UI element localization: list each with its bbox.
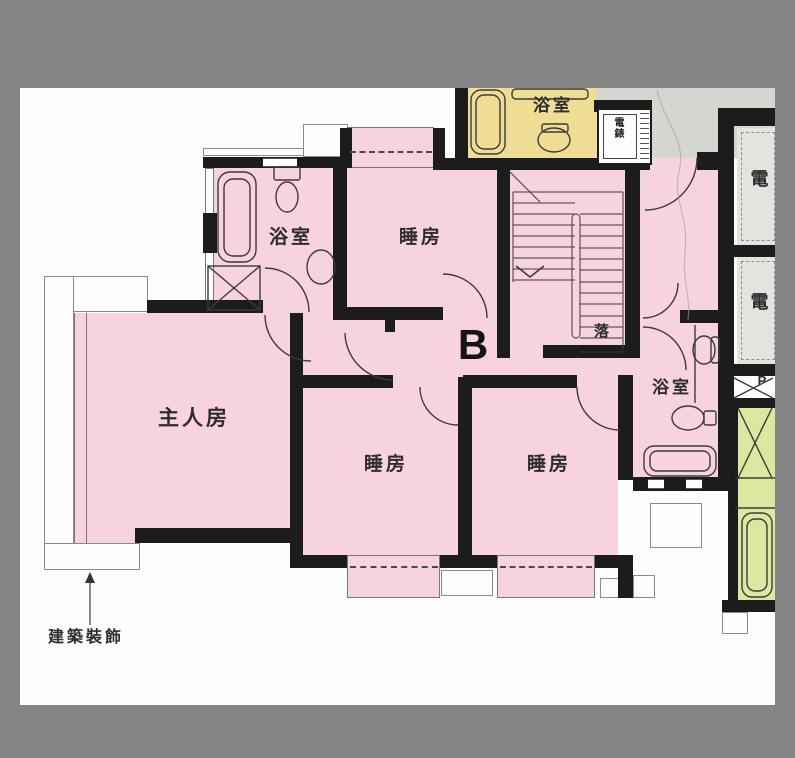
label-bedroom-right: 睡房 [518, 455, 580, 476]
wall [618, 375, 633, 480]
label-pipe-duct: P [752, 374, 772, 388]
wall [543, 345, 633, 358]
decoration-band-bottom [44, 543, 140, 570]
wall [618, 568, 633, 598]
window-in-wall [263, 158, 297, 167]
wall [385, 318, 395, 332]
window-in-wall [686, 479, 702, 489]
label-unit: B [450, 322, 496, 368]
bay-dashed-line [500, 566, 592, 568]
label-bedroom-left: 睡房 [355, 455, 417, 476]
wall [497, 158, 510, 358]
wall [595, 555, 633, 568]
decoration-arrow-head [85, 572, 95, 583]
label-meter-room-2: 電 [746, 293, 776, 313]
label-stair-down: 落 [589, 324, 617, 341]
wall [455, 88, 468, 158]
label-bathroom-top: 浴室 [260, 228, 322, 249]
bay-dashed-line [350, 566, 438, 568]
label-meter-room-1: 電 [746, 170, 776, 190]
meter-box-louvre [640, 113, 649, 160]
wall [722, 600, 775, 612]
wall [680, 310, 718, 323]
bay-window-top [347, 127, 434, 168]
label-master-bedroom: 主人房 [152, 407, 236, 430]
wall [458, 377, 472, 557]
label-bathroom-right: 浴室 [643, 379, 701, 398]
wall [303, 375, 393, 388]
floor-plan-scan: 電錶 [0, 0, 795, 758]
master-bay-window-lines [74, 313, 87, 543]
meter-box-label: 電錶 [610, 117, 625, 157]
wall [734, 245, 775, 257]
wall [135, 528, 303, 543]
wall [463, 375, 577, 388]
meter-box: 電錶 [597, 108, 652, 165]
lightwell-box [650, 503, 702, 548]
bay-dashed-line [350, 151, 432, 153]
bay-window-bedroom-left [347, 555, 440, 598]
small-box-below-green [722, 612, 748, 634]
window-in-wall [648, 479, 664, 489]
label-decoration: 建築裝飾 [48, 629, 168, 647]
wall [203, 213, 217, 253]
neighbor-green-room-area [735, 404, 775, 602]
wall [303, 555, 347, 568]
label-bedroom-top: 睡房 [390, 228, 452, 249]
small-box-right-of-bay [600, 578, 620, 598]
wall [333, 157, 347, 320]
small-box-below-bathroom [633, 575, 655, 598]
platform-between-bays [441, 570, 493, 596]
bay-window-bedroom-right [497, 555, 595, 598]
label-bathroom-neighbor: 浴室 [525, 97, 581, 116]
wall [147, 300, 263, 313]
wall [728, 404, 738, 610]
decoration-band-left [44, 276, 74, 570]
wall [625, 158, 640, 358]
